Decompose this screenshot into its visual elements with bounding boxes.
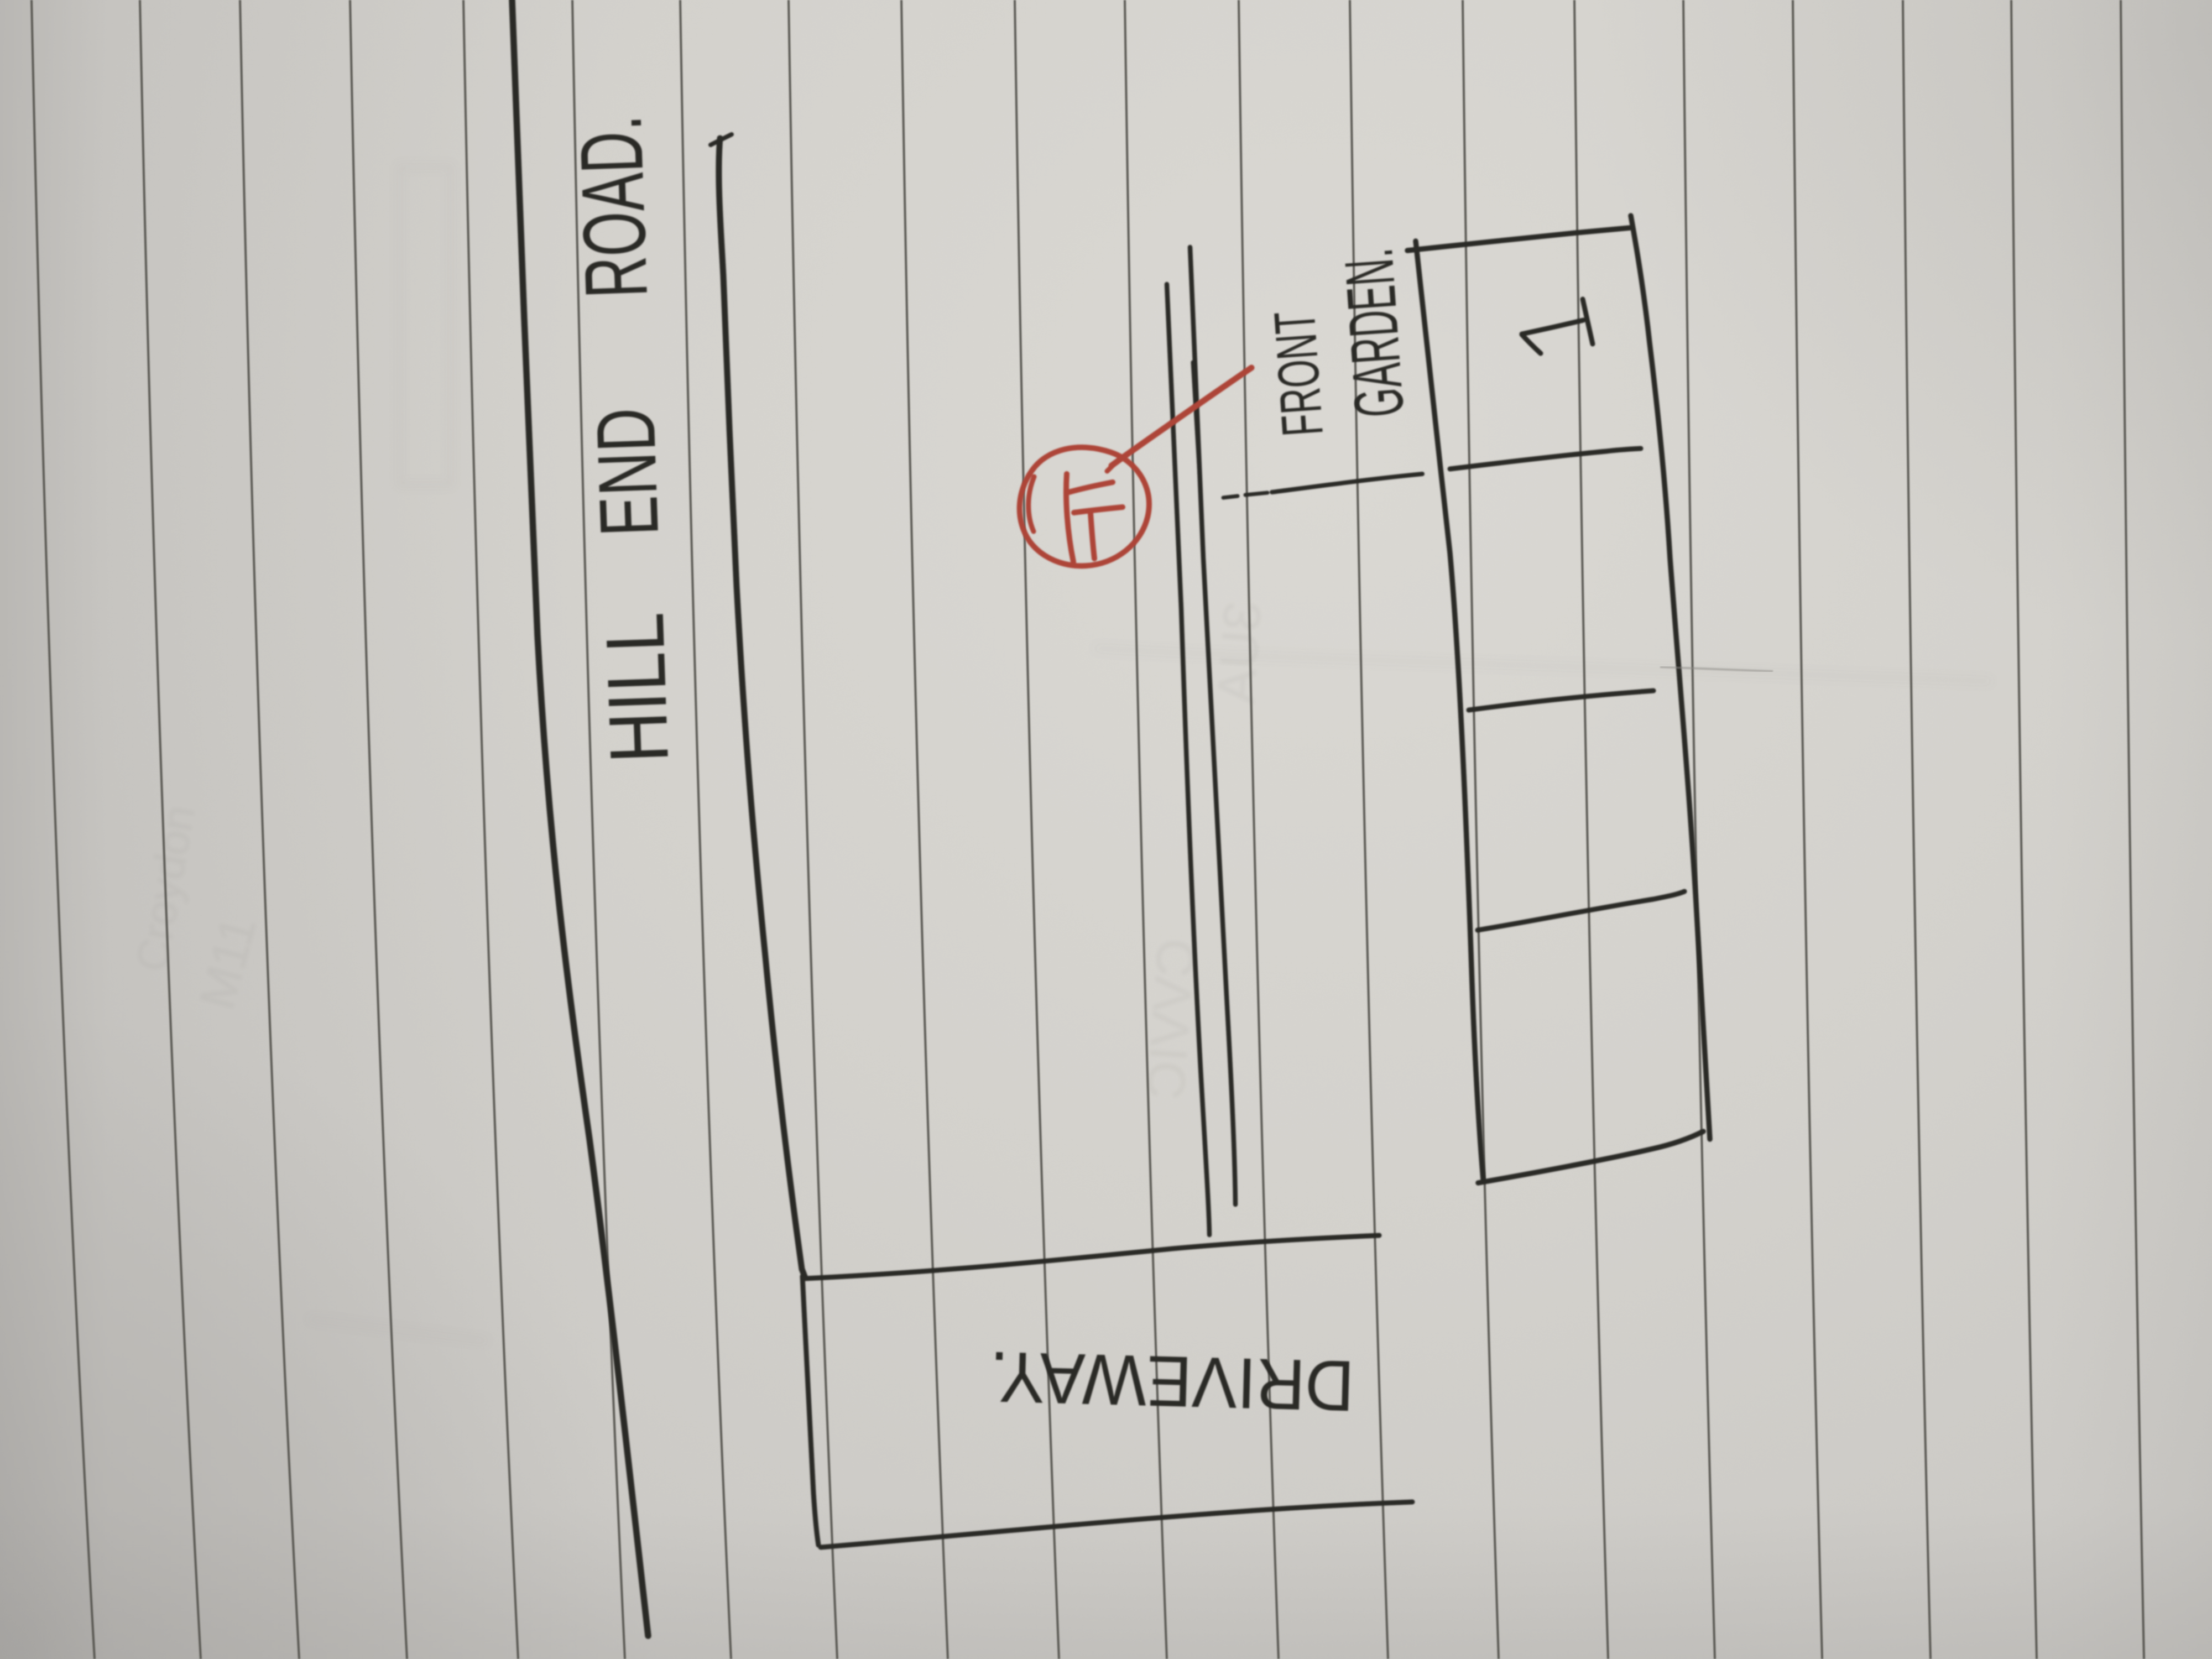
svg-text:DRIVEWAY.: DRIVEWAY. [988, 1337, 1355, 1427]
svg-text:HILL: HILL [588, 611, 686, 765]
svg-text:3UA: 3UA [1207, 599, 1272, 706]
svg-text:END: END [578, 406, 676, 538]
svg-text:GARDEN.: GARDEN. [1330, 246, 1418, 420]
svg-text:ROAD.: ROAD. [561, 114, 666, 300]
svg-text:FRONT: FRONT [1262, 309, 1335, 439]
